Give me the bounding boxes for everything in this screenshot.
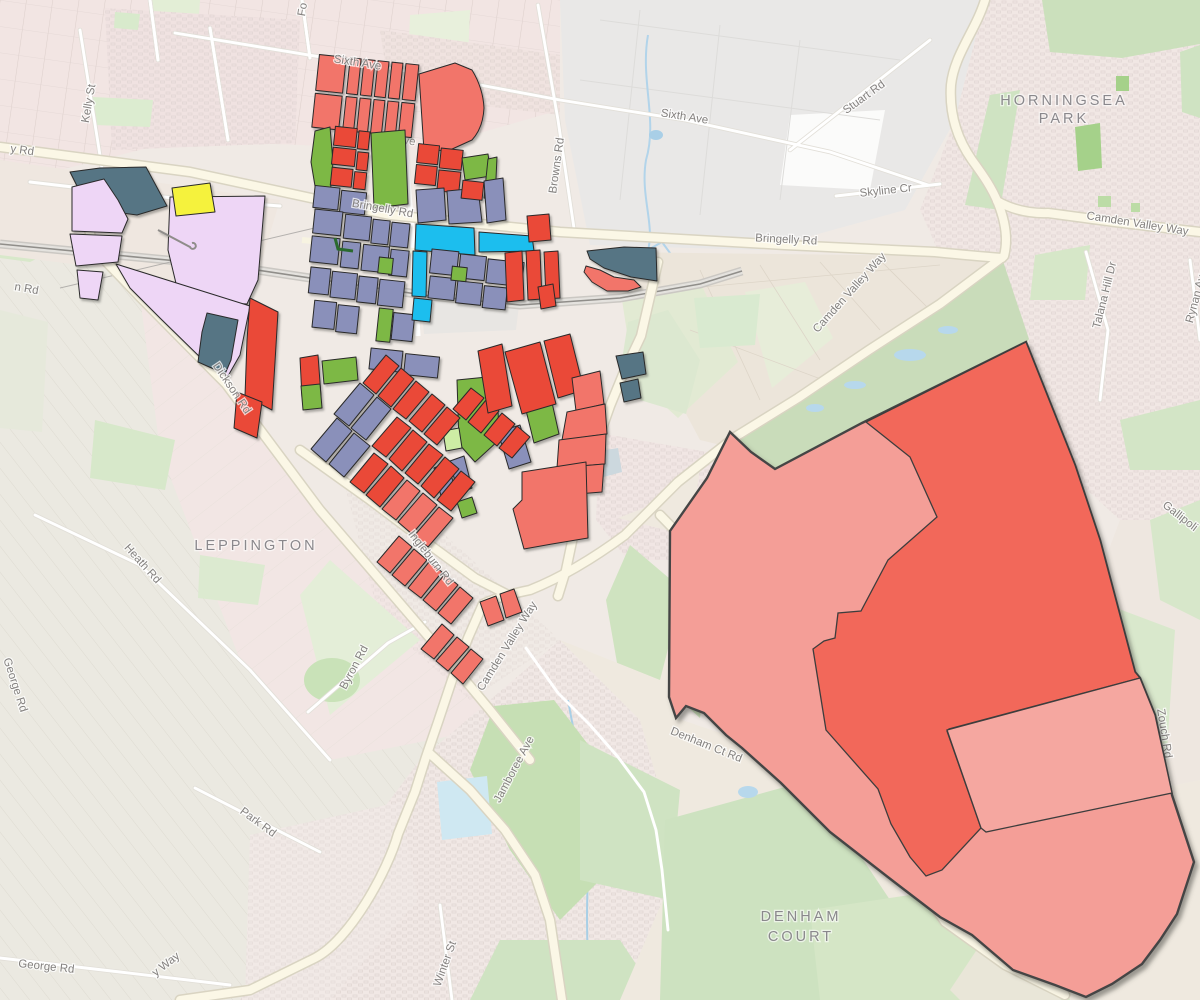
- svg-text:PARK: PARK: [1039, 111, 1089, 127]
- svg-text:HORNINGSEA: HORNINGSEA: [1000, 93, 1128, 109]
- svg-text:Fo: Fo: [296, 2, 310, 17]
- svg-text:DENHAM: DENHAM: [761, 909, 842, 925]
- svg-text:COURT: COURT: [768, 929, 834, 945]
- svg-text:LEPPINGTON: LEPPINGTON: [194, 538, 317, 554]
